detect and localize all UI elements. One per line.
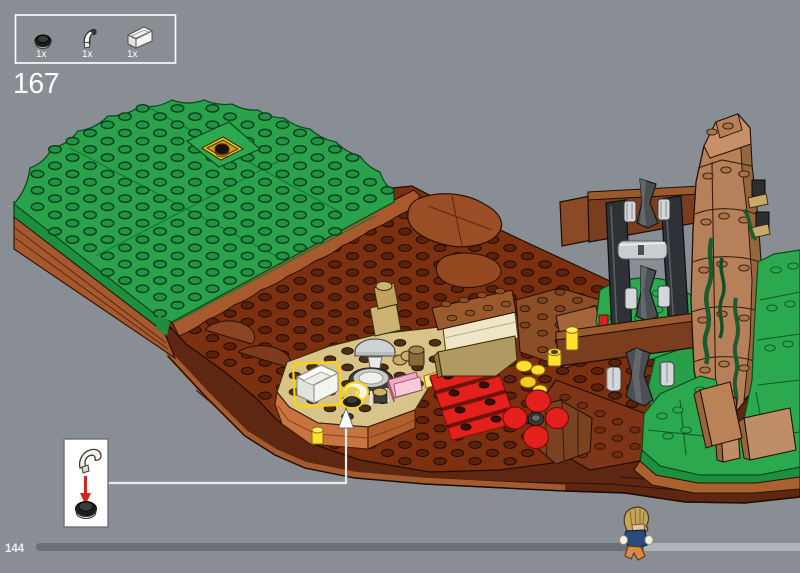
svg-text:1x: 1x	[127, 49, 138, 60]
svg-text:144: 144	[5, 543, 25, 555]
svg-text:167: 167	[13, 68, 59, 100]
svg-text:1x: 1x	[36, 49, 47, 60]
svg-text:1x: 1x	[82, 49, 93, 60]
